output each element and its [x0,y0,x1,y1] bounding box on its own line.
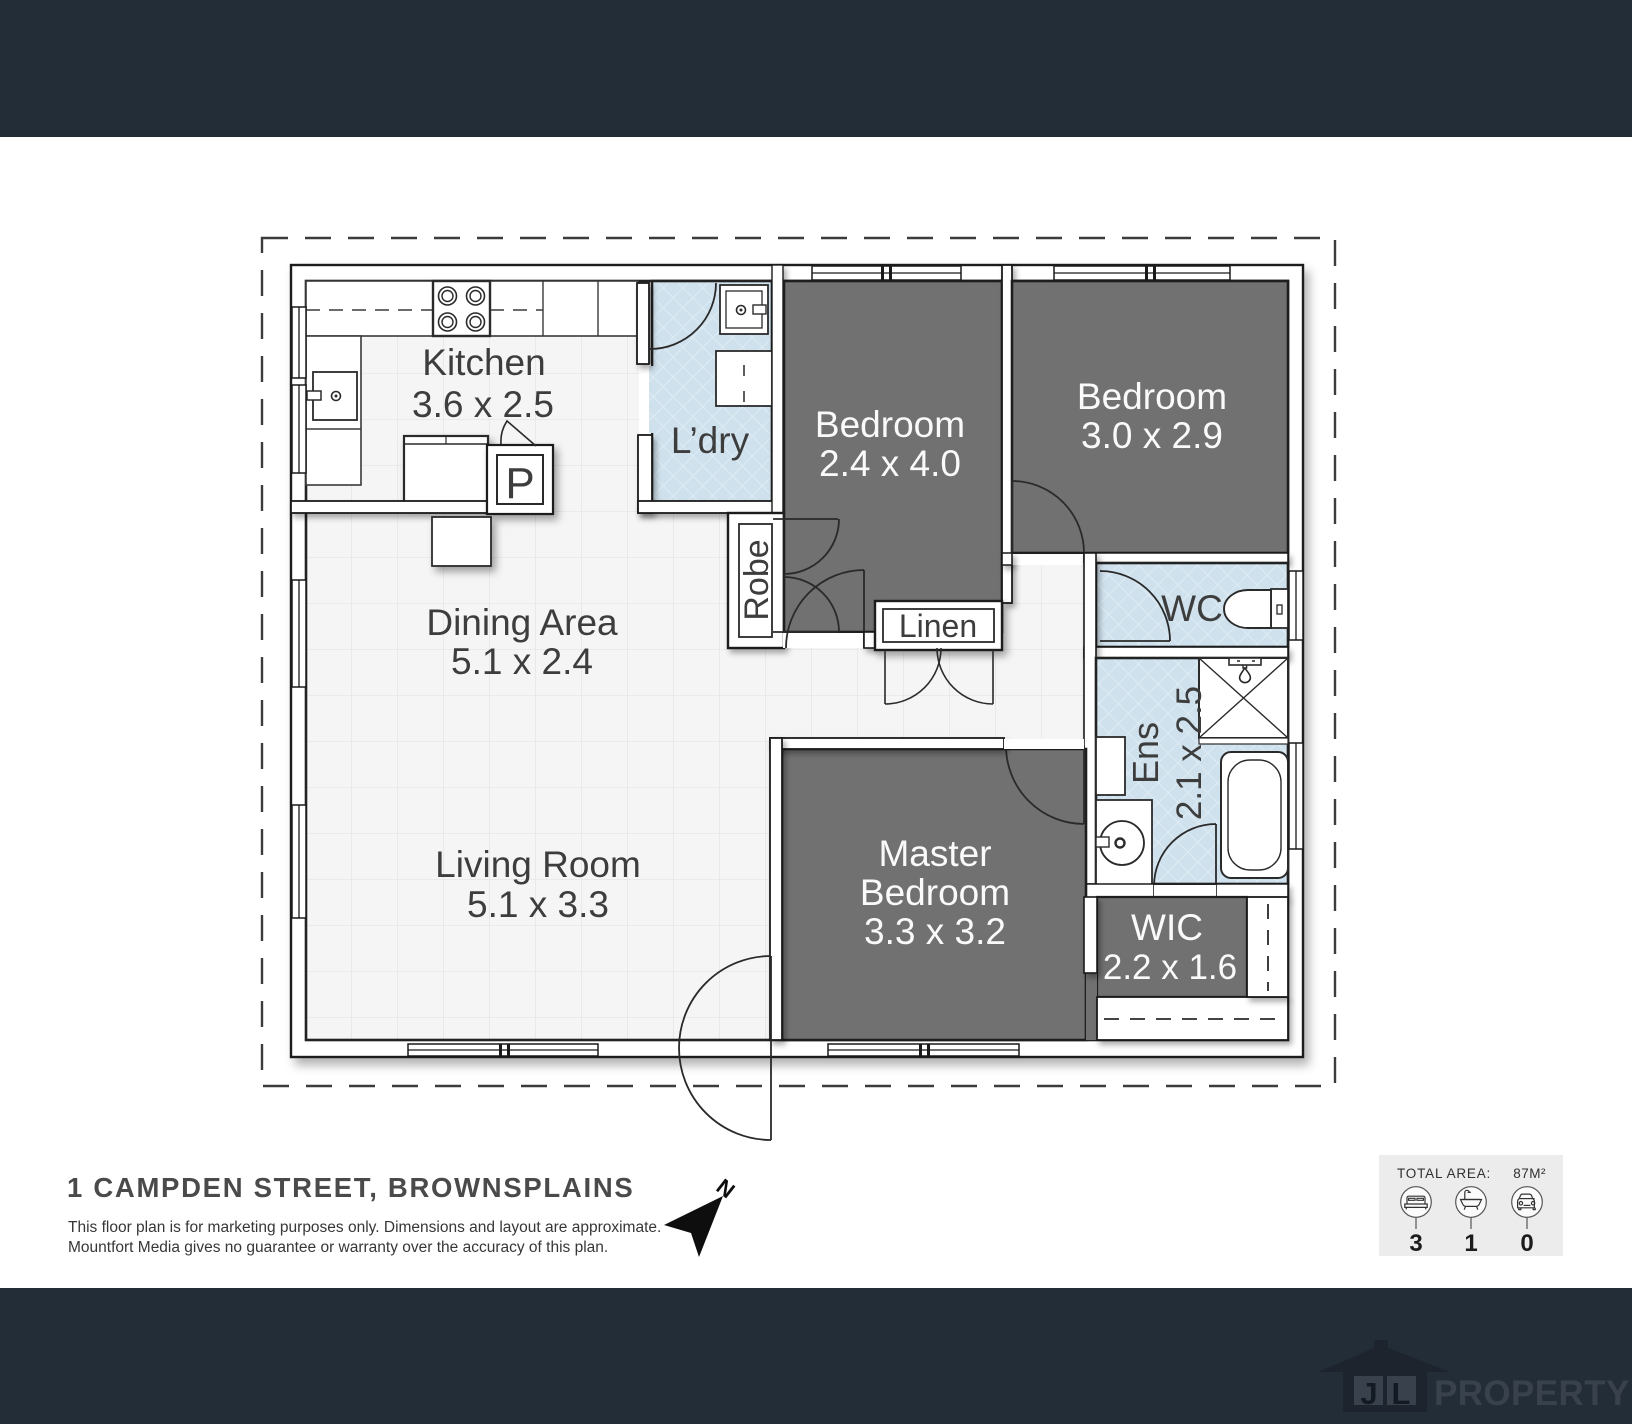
svg-text:5.1 x 3.3: 5.1 x 3.3 [467,884,609,925]
svg-text:2.4 x 4.0: 2.4 x 4.0 [819,443,961,484]
svg-text:WC: WC [1161,588,1223,629]
svg-text:Kitchen: Kitchen [422,342,545,383]
svg-text:Bedroom: Bedroom [1077,376,1227,417]
svg-text:Robe: Robe [738,539,776,620]
svg-text:2.1 x 2.5: 2.1 x 2.5 [1170,686,1209,820]
svg-text:1: 1 [1464,1230,1477,1257]
svg-text:Living Room: Living Room [435,844,641,885]
svg-text:L: L [1392,1376,1411,1411]
svg-text:3: 3 [1409,1230,1422,1257]
svg-text:PROPERTY: PROPERTY [1434,1374,1630,1413]
svg-text:Ens: Ens [1125,722,1166,784]
svg-text:Linen: Linen [899,608,977,644]
svg-text:3.6 x 2.5: 3.6 x 2.5 [412,384,554,425]
svg-text:L’dry: L’dry [671,420,750,461]
svg-text:Mountfort Media gives no guara: Mountfort Media gives no guarantee or wa… [68,1239,608,1256]
svg-text:J: J [1360,1376,1377,1411]
svg-text:P: P [505,459,534,508]
svg-text:2.2 x 1.6: 2.2 x 1.6 [1103,948,1237,987]
svg-text:Dining Area: Dining Area [426,602,618,643]
svg-text:Master: Master [878,833,991,874]
svg-text:Bedroom: Bedroom [860,872,1010,913]
svg-text:This floor plan is for marketi: This floor plan is for marketing purpose… [68,1219,661,1236]
svg-text:87M²: 87M² [1513,1166,1546,1181]
svg-text:TOTAL AREA:: TOTAL AREA: [1397,1166,1491,1181]
svg-text:N: N [712,1174,740,1203]
svg-text:1 CAMPDEN STREET, BROWNSPLAINS: 1 CAMPDEN STREET, BROWNSPLAINS [67,1172,634,1203]
svg-text:3.3 x 3.2: 3.3 x 3.2 [864,911,1006,952]
svg-text:Bedroom: Bedroom [815,404,965,445]
svg-text:WIC: WIC [1131,907,1203,948]
svg-text:0: 0 [1520,1230,1533,1257]
svg-text:5.1 x 2.4: 5.1 x 2.4 [451,641,593,682]
svg-text:3.0 x 2.9: 3.0 x 2.9 [1081,415,1223,456]
